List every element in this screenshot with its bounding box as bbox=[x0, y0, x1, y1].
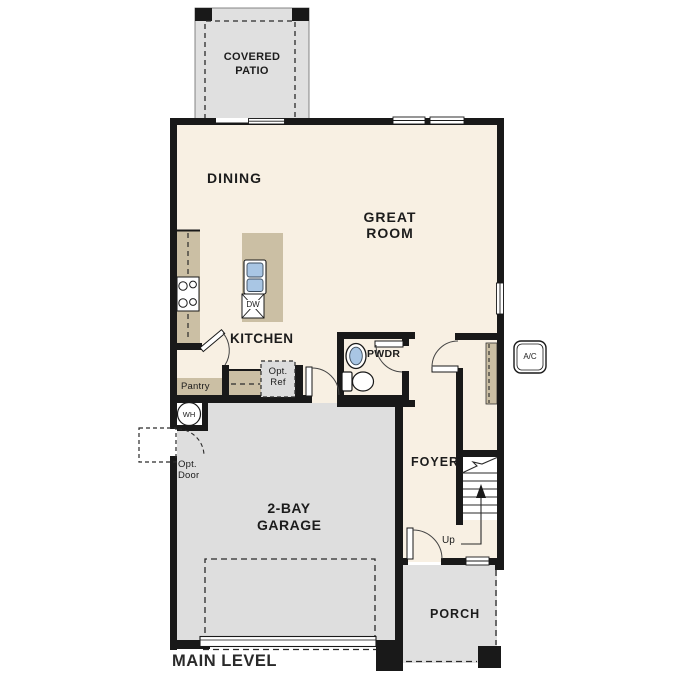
opt-door-label: Opt. Door bbox=[178, 459, 208, 481]
powder-door-leaf bbox=[375, 341, 403, 347]
porch-corner-pier bbox=[478, 646, 501, 668]
kitchen-label: KITCHEN bbox=[230, 331, 294, 346]
wall-stair-left bbox=[456, 368, 463, 525]
wall-entry-right bbox=[488, 558, 504, 565]
sink-basin-bottom bbox=[247, 279, 263, 292]
patio-post-right bbox=[292, 8, 309, 21]
dining-label: DINING bbox=[207, 170, 262, 186]
great-room-label: GREAT ROOM bbox=[358, 209, 422, 241]
dishwasher-label: DW bbox=[243, 300, 263, 309]
floor-plan-drawing bbox=[0, 0, 687, 687]
coat-closet-shelf bbox=[486, 343, 497, 404]
wall-pwdr-bottom bbox=[337, 400, 415, 407]
wall-entry-mid bbox=[441, 558, 466, 565]
wall-garage-right bbox=[395, 395, 403, 671]
opt-ref-label: Opt. Ref bbox=[263, 366, 293, 388]
main-level-title: MAIN LEVEL bbox=[172, 652, 277, 671]
powder-sink-basin bbox=[350, 347, 363, 365]
burner bbox=[190, 281, 197, 288]
toilet-tank bbox=[342, 372, 352, 391]
ac-label: A/C bbox=[514, 352, 546, 361]
burner bbox=[179, 282, 187, 290]
floor-plan: COVERED PATIO DINING GREAT ROOM KITCHEN … bbox=[0, 0, 687, 687]
slider-door-track bbox=[216, 118, 250, 123]
sink-basin-top bbox=[247, 263, 263, 277]
wall-wh-right bbox=[202, 403, 208, 427]
wall-pwdr-left bbox=[337, 332, 344, 407]
wall-ref-stub bbox=[295, 365, 303, 397]
wall-porch-return bbox=[495, 565, 504, 570]
powder-room-label: PWDR bbox=[367, 348, 400, 360]
porch-label: PORCH bbox=[430, 607, 480, 621]
foyer-label: FOYER bbox=[411, 455, 459, 469]
burner bbox=[179, 299, 187, 307]
counter-edge bbox=[177, 230, 200, 232]
patio-post-left bbox=[195, 8, 212, 21]
wall-pantry-right bbox=[222, 365, 229, 401]
burner bbox=[190, 299, 197, 306]
covered-patio-label: COVERED PATIO bbox=[222, 51, 282, 78]
garage-label: 2-BAY GARAGE bbox=[257, 500, 321, 534]
counter-edge2 bbox=[229, 369, 262, 371]
hall-door-leaf bbox=[306, 367, 312, 396]
wall-left bbox=[170, 118, 177, 650]
front-door-leaf bbox=[407, 528, 413, 559]
great-room-door-leaf bbox=[432, 366, 458, 372]
wall-pantry-top-stub bbox=[177, 343, 202, 350]
stairs-up-label: Up bbox=[442, 535, 455, 546]
toilet-bowl bbox=[353, 372, 374, 391]
wall-garage-corner bbox=[376, 640, 403, 671]
water-heater-label: WH bbox=[179, 410, 199, 419]
wall-wh-bottom bbox=[177, 425, 208, 431]
pantry-label: Pantry bbox=[181, 381, 210, 392]
wall-closet-top bbox=[455, 333, 504, 340]
wall-right bbox=[497, 118, 504, 565]
wall-stair-top bbox=[460, 450, 497, 457]
garage-door-panel bbox=[200, 637, 376, 647]
